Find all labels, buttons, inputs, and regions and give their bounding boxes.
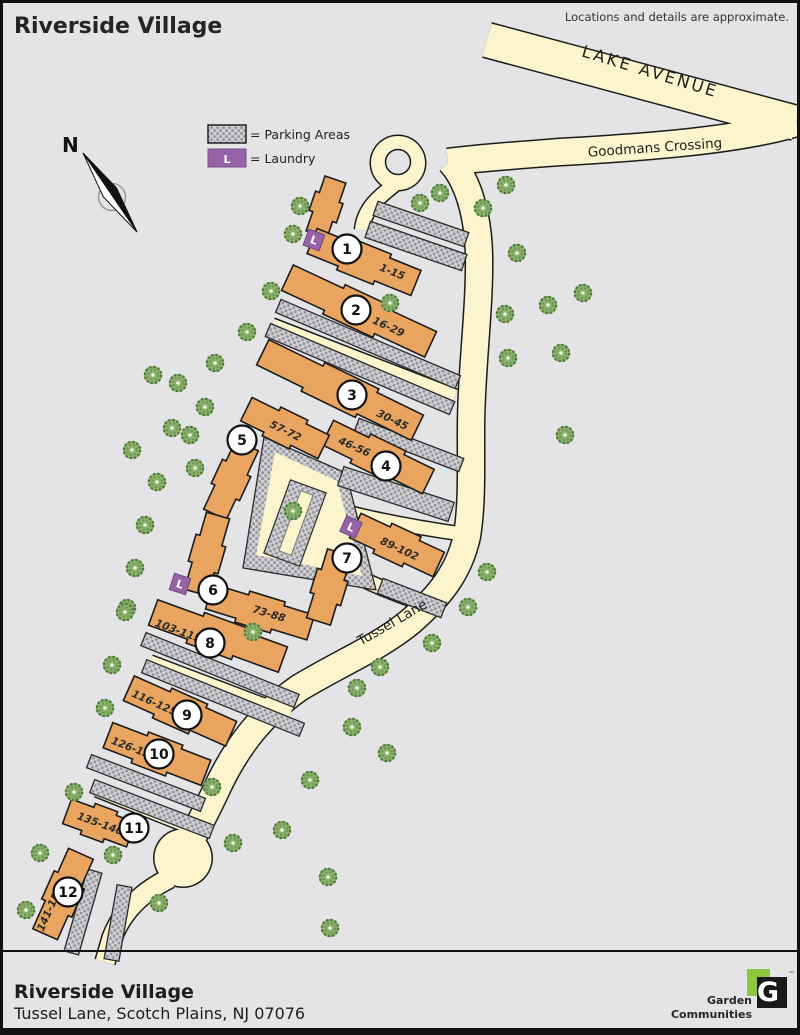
disclaimer-note: Locations and details are approximate. bbox=[565, 10, 789, 24]
tree-icon bbox=[186, 459, 204, 477]
svg-text:3: 3 bbox=[347, 388, 357, 404]
tree-icon bbox=[478, 563, 496, 581]
tree-icon bbox=[474, 199, 492, 217]
badge-8: 8 bbox=[196, 629, 225, 658]
logo-text-garden: Garden bbox=[707, 994, 752, 1007]
tree-icon bbox=[163, 419, 181, 437]
badge-5: 5 bbox=[228, 426, 257, 455]
footer-title: Riverside Village bbox=[14, 981, 194, 1003]
badge-9: 9 bbox=[173, 701, 202, 730]
tree-icon bbox=[273, 821, 291, 839]
tree-icon bbox=[539, 296, 557, 314]
page-title: Riverside Village bbox=[14, 14, 222, 39]
laundry-swatch-letter: L bbox=[223, 153, 230, 166]
tree-icon bbox=[203, 778, 221, 796]
svg-text:2: 2 bbox=[351, 303, 361, 319]
tree-icon bbox=[17, 901, 35, 919]
tree-icon bbox=[150, 894, 168, 912]
tree-icon bbox=[196, 398, 214, 416]
tree-icon bbox=[169, 374, 187, 392]
svg-text:9: 9 bbox=[182, 708, 192, 724]
svg-text:1: 1 bbox=[342, 242, 352, 258]
badge-11: 11 bbox=[120, 814, 149, 843]
bottom-border bbox=[0, 1028, 800, 1035]
tree-icon bbox=[284, 502, 302, 520]
tree-icon bbox=[343, 718, 361, 736]
logo-trademark: ™ bbox=[788, 970, 795, 978]
parking-swatch bbox=[208, 125, 246, 143]
riverside-village-map: 1-15 16-29 30-45 46-56 57-72 73-88 89-10… bbox=[0, 0, 800, 1035]
tree-icon bbox=[148, 473, 166, 491]
tree-icon bbox=[103, 656, 121, 674]
badge-12: 12 bbox=[54, 878, 83, 907]
tree-icon bbox=[284, 225, 302, 243]
tree-icon bbox=[116, 603, 134, 621]
tree-icon bbox=[262, 282, 280, 300]
badge-2: 2 bbox=[342, 296, 371, 325]
tree-icon bbox=[144, 366, 162, 384]
tree-icon bbox=[126, 559, 144, 577]
logo-text-communities: Communities bbox=[671, 1008, 752, 1021]
svg-text:5: 5 bbox=[237, 433, 247, 449]
svg-text:6: 6 bbox=[208, 583, 218, 599]
tree-icon bbox=[123, 441, 141, 459]
badge-6: 6 bbox=[199, 576, 228, 605]
tree-icon bbox=[31, 844, 49, 862]
site-map-page: 1-15 16-29 30-45 46-56 57-72 73-88 89-10… bbox=[0, 0, 800, 1035]
tree-icon bbox=[411, 194, 429, 212]
tree-icon bbox=[496, 305, 514, 323]
laundry-legend-label: = Laundry bbox=[250, 151, 316, 166]
tree-icon bbox=[508, 244, 526, 262]
tree-icon bbox=[431, 184, 449, 202]
tree-icon bbox=[244, 623, 262, 641]
tree-icon bbox=[321, 919, 339, 937]
tree-icon bbox=[381, 294, 399, 312]
tree-icon bbox=[499, 349, 517, 367]
tree-icon bbox=[65, 783, 83, 801]
tree-icon bbox=[348, 679, 366, 697]
tree-icon bbox=[378, 744, 396, 762]
badge-4: 4 bbox=[372, 452, 401, 481]
tree-icon bbox=[497, 176, 515, 194]
svg-text:12: 12 bbox=[58, 885, 77, 901]
svg-text:4: 4 bbox=[381, 459, 391, 475]
tree-icon bbox=[301, 771, 319, 789]
tree-icon bbox=[238, 323, 256, 341]
culdesac-island bbox=[386, 150, 411, 175]
svg-text:11: 11 bbox=[124, 821, 143, 837]
tree-icon bbox=[206, 354, 224, 372]
parking-legend-label: = Parking Areas bbox=[250, 127, 350, 142]
footer-address: Tussel Lane, Scotch Plains, NJ 07076 bbox=[13, 1004, 305, 1023]
tree-icon bbox=[371, 658, 389, 676]
tree-icon bbox=[319, 868, 337, 886]
tree-icon bbox=[96, 699, 114, 717]
tree-icon bbox=[104, 846, 122, 864]
tree-icon bbox=[181, 426, 199, 444]
badge-1: 1 bbox=[333, 235, 362, 264]
compass-north-label: N bbox=[62, 133, 79, 157]
tree-icon bbox=[291, 197, 309, 215]
tree-icon bbox=[136, 516, 154, 534]
logo-g-letter: G bbox=[757, 977, 779, 1008]
badge-7: 7 bbox=[333, 544, 362, 573]
tree-icon bbox=[556, 426, 574, 444]
culdesac-bottom bbox=[155, 830, 212, 887]
svg-text:7: 7 bbox=[342, 551, 352, 567]
tree-icon bbox=[423, 634, 441, 652]
tree-icon bbox=[459, 598, 477, 616]
svg-text:10: 10 bbox=[149, 747, 169, 763]
tree-icon bbox=[552, 344, 570, 362]
badge-10: 10 bbox=[145, 740, 174, 769]
tree-icon bbox=[574, 284, 592, 302]
footer-divider bbox=[0, 950, 800, 952]
svg-text:8: 8 bbox=[205, 636, 215, 652]
badge-3: 3 bbox=[338, 381, 367, 410]
tree-icon bbox=[224, 834, 242, 852]
